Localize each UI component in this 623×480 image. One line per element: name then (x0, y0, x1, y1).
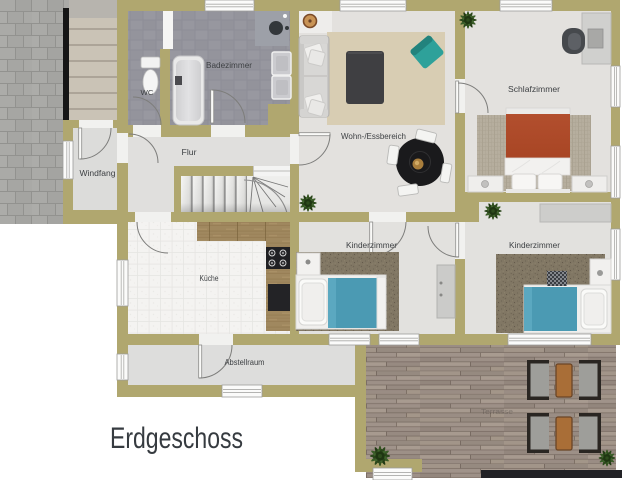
svg-text:Badezimmer: Badezimmer (206, 61, 252, 70)
svg-text:Schlafzimmer: Schlafzimmer (508, 85, 560, 94)
svg-text:Küche: Küche (200, 274, 219, 283)
svg-text:Kinderzimmer: Kinderzimmer (346, 241, 397, 250)
svg-text:Abstellraum: Abstellraum (225, 358, 265, 367)
svg-text:Terrasse: Terrasse (481, 407, 513, 416)
svg-text:Kinderzimmer: Kinderzimmer (509, 241, 560, 250)
svg-text:Wohn-/Essbereich: Wohn-/Essbereich (341, 132, 406, 141)
svg-text:Erdgeschoss: Erdgeschoss (110, 422, 243, 455)
svg-text:Windfang: Windfang (80, 169, 116, 178)
svg-text:WC: WC (141, 88, 155, 97)
svg-text:Flur: Flur (182, 148, 197, 157)
